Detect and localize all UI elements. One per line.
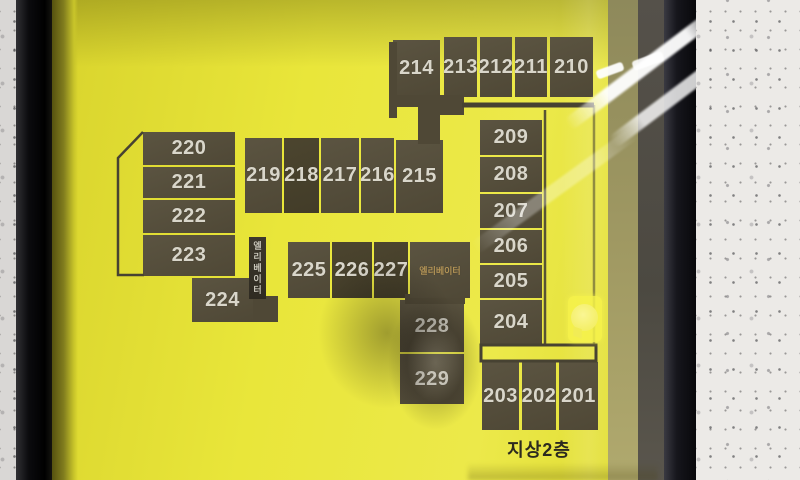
light-streak (564, 0, 696, 131)
current-location-tail (573, 326, 582, 338)
glass-reflection-smudge (388, 295, 483, 430)
floor-label: 지상2층 (496, 436, 582, 462)
ceiling-light-reflection (460, 0, 696, 260)
light-streak (470, 126, 640, 255)
floor-directory-photo: 2142132122112102202212222232242192182172… (0, 0, 800, 480)
map-outline-left (118, 132, 144, 275)
current-location-marker (568, 296, 602, 342)
map-outline-hall (481, 345, 596, 361)
